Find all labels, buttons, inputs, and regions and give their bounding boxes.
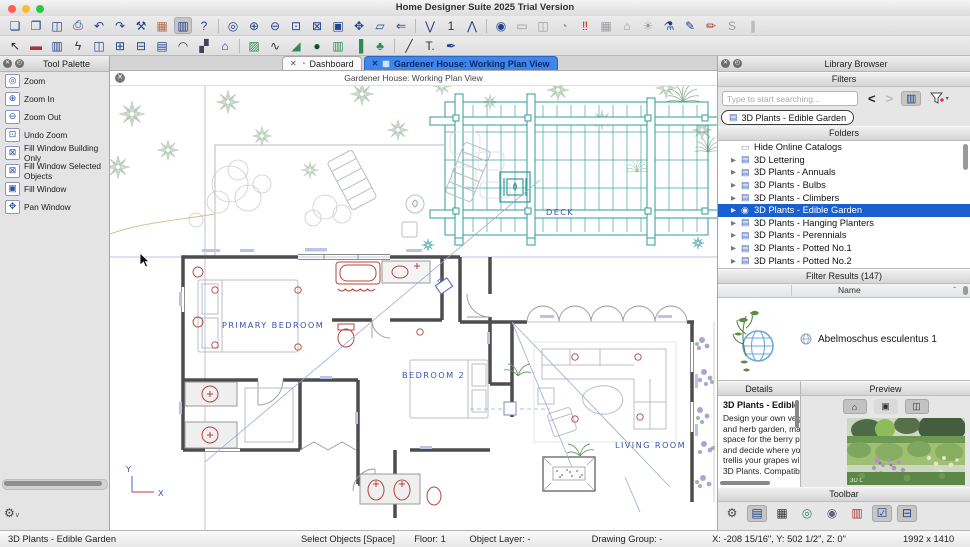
redo-icon[interactable]: ↷ bbox=[111, 17, 129, 34]
folder-icon: ▤ bbox=[741, 180, 754, 191]
palette-item-zoom-in[interactable]: ⊕Zoom In bbox=[0, 90, 109, 108]
search-input[interactable] bbox=[722, 91, 858, 106]
layout-panels-icon[interactable]: ▦ bbox=[153, 17, 171, 34]
window-title: Home Designer Suite 2025 Trial Version bbox=[0, 2, 970, 13]
folder-3d-plants-hanging-planters[interactable]: ▶▤3D Plants - Hanging Planters bbox=[718, 217, 970, 230]
plan-view-icon: ▦ bbox=[382, 59, 390, 68]
print-icon[interactable]: ⎙ bbox=[69, 17, 87, 34]
door-tool-icon[interactable]: ◫ bbox=[90, 37, 108, 54]
folder-label: Hide Online Catalogs bbox=[754, 142, 842, 152]
palette-item-zoom-out[interactable]: ⊖Zoom Out bbox=[0, 108, 109, 126]
palette-item-fill-window[interactable]: ▣Fill Window bbox=[0, 180, 109, 198]
expand-arrow-icon[interactable]: ▶ bbox=[731, 168, 741, 176]
expand-arrow-icon[interactable]: ▶ bbox=[731, 156, 741, 164]
folder-tree: ▭Hide Online Catalogs▶▤3D Lettering▶▤3D … bbox=[718, 141, 970, 269]
terrain-hatch-tool-icon[interactable]: ▨ bbox=[245, 37, 263, 54]
spline-tool-icon[interactable]: ∿ bbox=[266, 37, 284, 54]
details-text-line: trellis your grapes wi bbox=[723, 455, 792, 466]
expand-arrow-icon[interactable]: ▶ bbox=[731, 244, 741, 252]
results-list: Abelmoschus esculentus 1 bbox=[718, 298, 970, 381]
palette-item-fill-window-building-only[interactable]: ⊠Fill Window Building Only bbox=[0, 144, 109, 162]
pan-window-icon[interactable]: ✥ bbox=[350, 17, 368, 34]
tab-close-icon[interactable]: ✕ bbox=[372, 59, 379, 68]
bath-fixtures bbox=[185, 261, 441, 505]
tree-tool-icon[interactable]: ♣ bbox=[371, 37, 389, 54]
adjust-style-icon[interactable]: S bbox=[723, 17, 741, 34]
lighting-icon[interactable]: ☀ bbox=[639, 17, 657, 34]
floor-plan-drawing: DECK bbox=[110, 86, 717, 530]
toolbar-separator bbox=[394, 39, 395, 53]
undo-zoom-icon[interactable]: ⊡ bbox=[287, 17, 305, 34]
folder-3d-plants-bulbs[interactable]: ▶▤3D Plants - Bulbs bbox=[718, 179, 970, 192]
palette-item-label: Zoom Out bbox=[24, 112, 61, 122]
undo-icon[interactable]: ↶ bbox=[90, 17, 108, 34]
palette-item-zoom[interactable]: ◎Zoom bbox=[0, 72, 109, 90]
palette-item-pan-window[interactable]: ✥Pan Window bbox=[0, 198, 109, 216]
preview-pane: ⌂▣◫ bbox=[801, 396, 970, 487]
results-scrollbar[interactable] bbox=[963, 286, 968, 295]
toolbar-separator bbox=[486, 19, 487, 33]
fill-window-selected-objects-icon: ⊠ bbox=[5, 164, 20, 178]
spray-can-icon[interactable]: ⚗ bbox=[660, 17, 678, 34]
column-divider bbox=[791, 285, 792, 296]
expand-arrow-icon[interactable]: ▶ bbox=[731, 231, 741, 239]
folder-icon: ▤ bbox=[741, 217, 754, 228]
folder-options-icon[interactable]: ⊟ bbox=[897, 505, 917, 522]
folder-3d-plants-annuals[interactable]: ▶▤3D Plants - Annuals bbox=[718, 166, 970, 179]
toolbar-separator bbox=[218, 19, 219, 33]
folder-3d-plants-edible-garden[interactable]: ▶◉3D Plants - Edible Garden bbox=[718, 204, 970, 217]
library-toolbar: ⚙▤▦◎◉▥☑⊟ bbox=[718, 502, 970, 524]
folder-label: 3D Plants - Potted No.1 bbox=[754, 243, 852, 253]
toolbar-section-header: Toolbar bbox=[718, 487, 970, 502]
text-tool-icon[interactable]: T. bbox=[421, 37, 439, 54]
floor-plan-canvas[interactable]: DECK bbox=[110, 86, 717, 530]
living-room-label: LIVING ROOM bbox=[615, 440, 686, 450]
electrical-tool-icon[interactable]: ϟ bbox=[69, 37, 87, 54]
titlebar: Home Designer Suite 2025 Trial Version bbox=[0, 0, 970, 17]
folder-icon: ▤ bbox=[741, 154, 754, 165]
deck-label: DECK bbox=[546, 207, 574, 217]
railing-tool-icon[interactable]: ▥ bbox=[48, 37, 66, 54]
zoom-icon[interactable]: ◎ bbox=[224, 17, 242, 34]
folder-label: 3D Plants - Climbers bbox=[754, 193, 839, 203]
paint-tool-icon[interactable]: ✒ bbox=[442, 37, 460, 54]
palette-item-label: Pan Window bbox=[24, 202, 71, 212]
preview-header: Preview bbox=[801, 381, 970, 396]
floor-down-icon[interactable]: ⋁ bbox=[421, 17, 439, 34]
filters-section-header: Filters bbox=[718, 72, 970, 87]
library-settings-gear-icon[interactable]: ⚙ bbox=[722, 505, 742, 522]
dashboard-icon: ◔ bbox=[301, 59, 306, 68]
status-active-tool: Select Objects [Space] bbox=[301, 534, 395, 544]
expand-arrow-icon[interactable]: ▶ bbox=[731, 257, 741, 265]
back-reference-icon[interactable]: ⇐ bbox=[392, 17, 410, 34]
plan-view-area: ✕ ◔ Dashboard ✕ ▦ Gardener House: Workin… bbox=[110, 56, 717, 530]
folder-label: 3D Plants - Hanging Planters bbox=[754, 218, 874, 228]
render-view-icon[interactable]: ▭ bbox=[513, 17, 531, 34]
details-text-line: 3D Plants. Compatib bbox=[723, 466, 792, 477]
garden-plants bbox=[110, 86, 717, 251]
palette-item-label: Fill Window Building Only bbox=[24, 143, 109, 163]
floor-number-icon[interactable]: 1 bbox=[442, 17, 460, 34]
preview-image: 3D L bbox=[847, 418, 965, 485]
pan-window-icon: ✥ bbox=[5, 200, 20, 214]
terrain-tool-icon[interactable]: ◢ bbox=[287, 37, 305, 54]
preview-buttons: ⌂▣◫ bbox=[801, 396, 970, 414]
plant-thumbnail[interactable] bbox=[728, 304, 786, 374]
view-list-icon[interactable]: ▤ bbox=[747, 505, 767, 522]
funnel-icon bbox=[930, 92, 946, 105]
select-objects-icon[interactable]: ↖ bbox=[6, 37, 24, 54]
expand-arrow-icon[interactable]: ▶ bbox=[731, 194, 741, 202]
folder-label: 3D Plants - Perennials bbox=[754, 230, 847, 240]
details-vscrollbar[interactable] bbox=[795, 400, 799, 428]
folder-hide-online-catalogs[interactable]: ▭Hide Online Catalogs bbox=[718, 141, 970, 154]
wall-tool-icon[interactable]: ▬ bbox=[27, 37, 45, 54]
toolbar-separator bbox=[415, 19, 416, 33]
forward-icon[interactable]: > bbox=[886, 91, 894, 106]
details-text-line: and decide where yo bbox=[723, 445, 792, 456]
gate-tool-icon[interactable]: ▐ bbox=[350, 37, 368, 54]
expand-arrow-icon[interactable]: ▶ bbox=[731, 206, 741, 214]
sliding-door-tool-icon[interactable]: ⊟ bbox=[132, 37, 150, 54]
plant-chooser-icon[interactable]: ◎ bbox=[797, 505, 817, 522]
fill-window-icon: ▣ bbox=[5, 182, 20, 196]
main-toolbar: ❏❐◫⎙↶↷⚒▦▥?◎⊕⊖⊡⊠▣✥▱⇐⋁1⋀◉▭◫◔‼▦⌂☀⚗✎✏S∥ bbox=[0, 16, 970, 36]
active-filter-chip[interactable]: ▤ 3D Plants - Edible Garden bbox=[721, 110, 854, 125]
result-item-name[interactable]: Abelmoschus esculentus 1 bbox=[818, 334, 937, 345]
search-row: < > ▥ ▾ bbox=[718, 87, 970, 110]
floor-up-icon[interactable]: ⋀ bbox=[463, 17, 481, 34]
toolbar-separator bbox=[239, 39, 240, 53]
walls bbox=[183, 255, 694, 518]
sort-ascending-icon[interactable]: ˆ bbox=[953, 284, 956, 297]
name-column-header[interactable]: Name ˆ bbox=[718, 284, 970, 298]
details-header: Details bbox=[718, 381, 801, 396]
status-bar: 3D Plants - Edible GardenSelect Objects … bbox=[0, 530, 970, 547]
dormer-tool-icon[interactable]: ▞ bbox=[195, 37, 213, 54]
building-overview-icon[interactable]: ▦ bbox=[597, 17, 615, 34]
tool-palette-panel: ✕ ◴ Tool Palette ◎Zoom⊕Zoom In⊖Zoom Out⊡… bbox=[0, 56, 110, 530]
close-panel-icon[interactable]: ✕ bbox=[721, 59, 730, 68]
results-section-header: Filter Results (147) bbox=[718, 269, 970, 284]
zoom-in-icon: ⊕ bbox=[5, 92, 20, 106]
svg-text:Y: Y bbox=[125, 464, 132, 474]
library-browser-panel: ✕ ◴ Library Browser Filters < > ▥ ▾ ▤ 3D… bbox=[717, 56, 970, 530]
fill-preview-button[interactable]: ▣ bbox=[874, 399, 898, 414]
build-toolbar: ↖▬▥ϟ◫⊞⊟▤◠▞⌂▨∿◢●▥▐♣╱T.✒ bbox=[0, 36, 970, 56]
patio bbox=[215, 142, 491, 257]
catalog-icon: ▭ bbox=[741, 142, 754, 153]
tab-working-plan-view[interactable]: ✕ ▦ Gardener House: Working Plan View bbox=[364, 56, 558, 70]
status-plan-size: 1992 x 1410 bbox=[903, 534, 954, 544]
mouse-cursor bbox=[140, 253, 149, 267]
snapshot-icon[interactable]: ◫ bbox=[534, 17, 552, 34]
tab-bar: ✕ ◔ Dashboard ✕ ▦ Gardener House: Workin… bbox=[110, 56, 717, 71]
palette-item-label: Fill Window Selected Objects bbox=[24, 161, 109, 181]
deck-tool-icon[interactable]: ▥ bbox=[329, 37, 347, 54]
zoom-in-icon[interactable]: ⊕ bbox=[245, 17, 263, 34]
expand-arrow-icon[interactable]: ▶ bbox=[731, 181, 741, 189]
primary-bedroom-label: PRIMARY BEDROOM bbox=[222, 320, 324, 330]
library-browser-icon[interactable]: ▥ bbox=[174, 17, 192, 34]
filter-chip-row: ▤ 3D Plants - Edible Garden bbox=[718, 110, 970, 126]
globe-icon: ◉ bbox=[741, 205, 754, 216]
undo-zoom-icon: ⊡ bbox=[5, 128, 20, 142]
palette-item-label: Zoom In bbox=[24, 94, 54, 104]
tool-palette-title: Tool Palette bbox=[24, 59, 109, 69]
toggle-preview-panel-button[interactable]: ◫ bbox=[905, 399, 929, 414]
palette-hscrollbar[interactable] bbox=[2, 479, 108, 490]
fill-window-building-only-icon: ⊠ bbox=[5, 146, 20, 160]
cabinet-tool-icon[interactable]: ▤ bbox=[153, 37, 171, 54]
axis-indicator: Y X bbox=[125, 464, 165, 498]
house-tool-icon[interactable]: ⌂ bbox=[216, 37, 234, 54]
folder-label: 3D Plants - Potted No.2 bbox=[754, 256, 852, 266]
details-text-line: space for the berry p bbox=[723, 434, 792, 445]
details-text-line: and herb garden, ma bbox=[723, 424, 792, 435]
zoom-out-icon[interactable]: ⊖ bbox=[266, 17, 284, 34]
close-view-icon[interactable]: ✕ bbox=[115, 73, 125, 83]
undock-panel-icon[interactable]: ◴ bbox=[15, 59, 24, 68]
view-title-bar: ✕ Gardener House: Working Plan View bbox=[110, 71, 717, 86]
palette-item-fill-window-selected-objects[interactable]: ⊠Fill Window Selected Objects bbox=[0, 162, 109, 180]
back-icon[interactable]: < bbox=[868, 91, 876, 106]
tree-scrollbar[interactable] bbox=[963, 144, 968, 170]
palette-item-undo-zoom[interactable]: ⊡Undo Zoom bbox=[0, 126, 109, 144]
folder-3d-plants-climbers[interactable]: ▶▤3D Plants - Climbers bbox=[718, 191, 970, 204]
roof-tool-icon[interactable]: ◠ bbox=[174, 37, 192, 54]
match-properties-icon[interactable]: ∥ bbox=[744, 17, 762, 34]
ceiling-markers bbox=[193, 267, 643, 422]
folder-3d-plants-perennials[interactable]: ▶▤3D Plants - Perennials bbox=[718, 229, 970, 242]
pond-tool-icon[interactable]: ● bbox=[308, 37, 326, 54]
folder-3d-plants-potted-no-1[interactable]: ▶▤3D Plants - Potted No.1 bbox=[718, 242, 970, 255]
walkthrough-footprints-icon[interactable]: ‼ bbox=[576, 17, 594, 34]
line-tool-icon[interactable]: ╱ bbox=[400, 37, 418, 54]
library-icon: ▤ bbox=[729, 112, 738, 123]
folder-label: 3D Plants - Edible Garden bbox=[754, 205, 862, 215]
deck-structure bbox=[430, 94, 717, 245]
status-active-filter: 3D Plants - Edible Garden bbox=[8, 534, 116, 544]
folder-icon: ▤ bbox=[741, 167, 754, 178]
status-floor: Floor: 1 bbox=[414, 534, 446, 544]
details-preview-content: 3D Plants - Edible G Design your own veg… bbox=[718, 396, 970, 487]
details-hscrollbar[interactable] bbox=[720, 481, 770, 485]
folder-3d-lettering[interactable]: ▶▤3D Lettering bbox=[718, 154, 970, 167]
record-walkthrough-icon[interactable]: ◔ bbox=[555, 17, 573, 34]
window-tool-icon[interactable]: ⊞ bbox=[111, 37, 129, 54]
folders-section-header: Folders bbox=[718, 126, 970, 141]
status-object-layer: Object Layer: - bbox=[470, 534, 531, 544]
library-panels-icon[interactable]: ▥ bbox=[847, 505, 867, 522]
settings-wrench-icon[interactable]: ⚒ bbox=[132, 17, 150, 34]
close-panel-icon[interactable]: ✕ bbox=[3, 59, 12, 68]
style-painter-icon[interactable]: ✏ bbox=[702, 17, 720, 34]
folder-icon: ▤ bbox=[741, 192, 754, 203]
zoom-icon: ◎ bbox=[5, 74, 20, 88]
folder-3d-plants-potted-no-2[interactable]: ▶▤3D Plants - Potted No.2 bbox=[718, 254, 970, 267]
bedroom2-label: BEDROOM 2 bbox=[402, 370, 465, 380]
main-area: ✕ ◴ Tool Palette ◎Zoom⊕Zoom In⊖Zoom Out⊡… bbox=[0, 56, 970, 530]
expand-arrow-icon[interactable]: ▶ bbox=[731, 219, 741, 227]
layers-3d-icon[interactable]: ▱ bbox=[371, 17, 389, 34]
open-folder-icon[interactable]: ❐ bbox=[27, 17, 45, 34]
details-preview-headers: Details Preview bbox=[718, 381, 970, 396]
view-title: Gardener House: Working Plan View bbox=[344, 73, 483, 83]
catalog-globe-icon bbox=[800, 333, 812, 345]
fill-window-building-only-icon[interactable]: ⊠ bbox=[308, 17, 326, 34]
folder-label: 3D Plants - Annuals bbox=[754, 167, 836, 177]
folder-label: 3D Plants - Bulbs bbox=[754, 180, 826, 190]
svg-text:3D L: 3D L bbox=[850, 478, 863, 484]
details-pane[interactable]: 3D Plants - Edible G Design your own veg… bbox=[718, 396, 801, 487]
reference-lines bbox=[110, 86, 717, 530]
zoom-out-icon: ⊖ bbox=[5, 110, 20, 124]
status-drawing-group: Drawing Group: - bbox=[592, 534, 663, 544]
folder-icon: ▤ bbox=[741, 255, 754, 266]
app-window: Home Designer Suite 2025 Trial Version ❏… bbox=[0, 0, 970, 547]
eyedropper-icon[interactable]: ✎ bbox=[681, 17, 699, 34]
save-icon[interactable]: ◫ bbox=[48, 17, 66, 34]
core-catalogs-globe-icon[interactable]: ◉ bbox=[822, 505, 842, 522]
camera-view-icon[interactable]: ◉ bbox=[492, 17, 510, 34]
tab-dashboard[interactable]: ✕ ◔ Dashboard bbox=[282, 56, 362, 70]
camera-sight-lines bbox=[205, 180, 670, 512]
palette-gear-icon[interactable]: ⚙∨ bbox=[4, 506, 20, 520]
view-grid-icon[interactable]: ▦ bbox=[772, 505, 792, 522]
palette-item-label: Undo Zoom bbox=[24, 130, 67, 140]
details-text-line: Design your own veg bbox=[723, 413, 792, 424]
fireplace bbox=[543, 457, 595, 491]
tool-palette-header: ✕ ◴ Tool Palette bbox=[0, 56, 109, 72]
library-search-options-icon[interactable]: ▥ bbox=[901, 91, 921, 106]
folder-icon: ▤ bbox=[741, 243, 754, 254]
folder-icon: ▤ bbox=[741, 230, 754, 241]
folder-label: 3D Lettering bbox=[754, 155, 805, 165]
fill-window-icon[interactable]: ▣ bbox=[329, 17, 347, 34]
undock-panel-icon[interactable]: ◴ bbox=[733, 59, 742, 68]
furniture bbox=[198, 280, 676, 442]
new-document-icon[interactable]: ❏ bbox=[6, 17, 24, 34]
home-overview-icon[interactable]: ⌂ bbox=[618, 17, 636, 34]
palette-item-label: Zoom bbox=[24, 76, 45, 86]
expand-tree-check-icon[interactable]: ☑ bbox=[872, 505, 892, 522]
tab-close-icon[interactable]: ✕ bbox=[290, 59, 297, 68]
help-icon[interactable]: ? bbox=[195, 17, 213, 34]
palette-item-label: Fill Window bbox=[24, 184, 66, 194]
filter-funnel-icon[interactable]: ▾ bbox=[929, 91, 949, 106]
tool-palette-items: ◎Zoom⊕Zoom In⊖Zoom Out⊡Undo Zoom⊠Fill Wi… bbox=[0, 72, 109, 216]
library-browser-header: ✕ ◴ Library Browser bbox=[718, 56, 970, 72]
status-coordinates: X: -208 15/16", Y: 502 1/2", Z: 0" bbox=[712, 534, 846, 544]
svg-text:X: X bbox=[158, 488, 165, 498]
library-browser-title: Library Browser bbox=[742, 59, 970, 69]
placement-options-button[interactable]: ⌂ bbox=[843, 399, 867, 414]
